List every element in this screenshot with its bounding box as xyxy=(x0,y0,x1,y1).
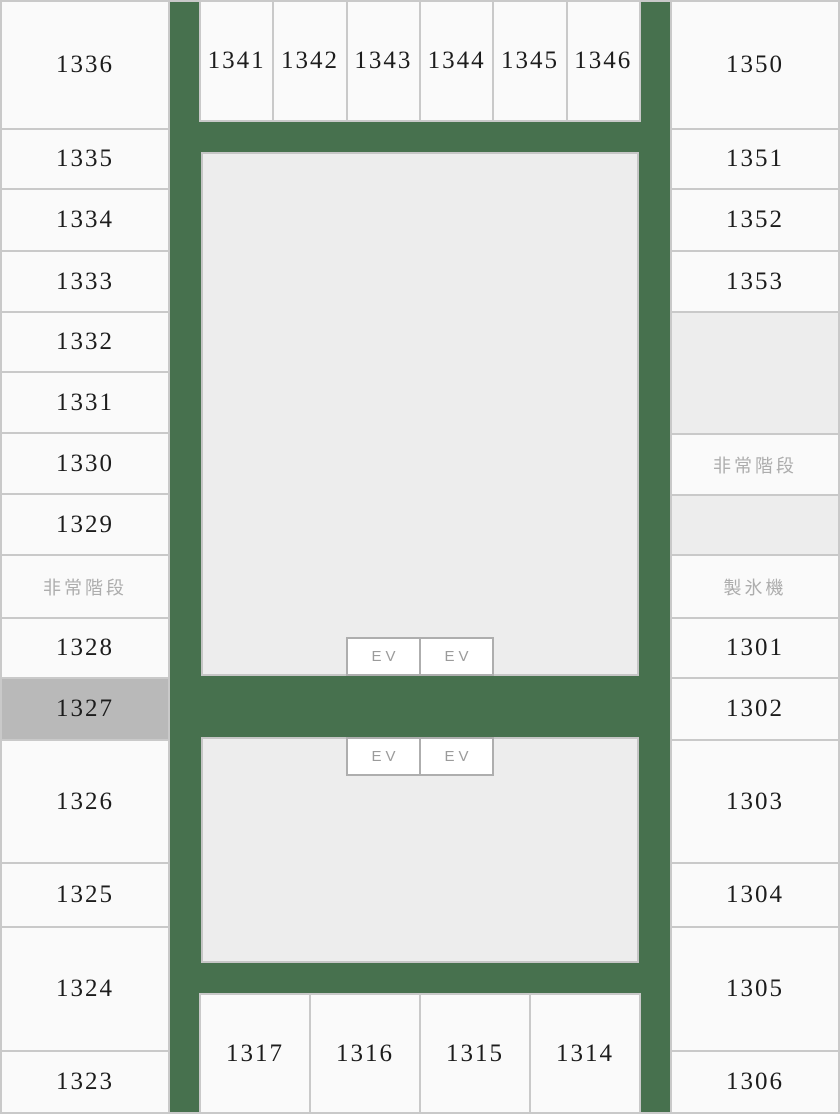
room-1345[interactable]: 1345 xyxy=(494,2,565,120)
empty-block xyxy=(672,313,838,433)
room-1305[interactable]: 1305 xyxy=(672,928,838,1050)
floor-map: 1336 1335 1334 1333 1332 1331 1330 1329 … xyxy=(0,0,840,1114)
room-1333[interactable]: 1333 xyxy=(2,252,168,311)
room-1316[interactable]: 1316 xyxy=(311,995,419,1112)
room-1304[interactable]: 1304 xyxy=(672,864,838,926)
room-1325[interactable]: 1325 xyxy=(2,864,168,926)
left-room-column: 1336 1335 1334 1333 1332 1331 1330 1329 … xyxy=(2,2,170,1112)
upper-utility-block: EV EV xyxy=(201,152,639,676)
room-1314[interactable]: 1314 xyxy=(531,995,639,1112)
right-room-column: 1350 1351 1352 1353 非常階段 製氷機 1301 1302 1… xyxy=(670,2,838,1112)
room-1350[interactable]: 1350 xyxy=(672,2,838,128)
room-1334[interactable]: 1334 xyxy=(2,190,168,250)
room-1317[interactable]: 1317 xyxy=(201,995,309,1112)
room-1341[interactable]: 1341 xyxy=(201,2,272,120)
room-1326[interactable]: 1326 xyxy=(2,741,168,862)
room-1342[interactable]: 1342 xyxy=(274,2,345,120)
bottom-room-row: 1317 1316 1315 1314 xyxy=(199,993,641,1114)
room-1301[interactable]: 1301 xyxy=(672,619,838,677)
corridor: 1341 1342 1343 1344 1345 1346 EV EV EV E… xyxy=(170,2,670,1112)
room-1351[interactable]: 1351 xyxy=(672,130,838,188)
room-1303[interactable]: 1303 xyxy=(672,741,838,862)
room-1302[interactable]: 1302 xyxy=(672,679,838,739)
lower-utility-block: EV EV xyxy=(201,737,639,963)
ice-machine-cell: 製氷機 xyxy=(672,556,838,617)
empty-block xyxy=(672,496,838,554)
upper-elevator-bank: EV EV xyxy=(346,637,494,676)
elevator-box: EV xyxy=(346,637,421,676)
room-1344[interactable]: 1344 xyxy=(421,2,492,120)
room-1352[interactable]: 1352 xyxy=(672,190,838,250)
top-room-row: 1341 1342 1343 1344 1345 1346 xyxy=(199,0,641,122)
emergency-stairs-cell: 非常階段 xyxy=(2,556,168,617)
room-1332[interactable]: 1332 xyxy=(2,313,168,371)
elevator-box: EV xyxy=(419,737,494,776)
room-1327-selected[interactable]: 1327 xyxy=(2,679,168,739)
room-1306[interactable]: 1306 xyxy=(672,1052,838,1112)
room-1323[interactable]: 1323 xyxy=(2,1052,168,1112)
room-1328[interactable]: 1328 xyxy=(2,619,168,677)
room-1329[interactable]: 1329 xyxy=(2,495,168,554)
room-1343[interactable]: 1343 xyxy=(348,2,419,120)
room-1324[interactable]: 1324 xyxy=(2,928,168,1050)
room-1346[interactable]: 1346 xyxy=(568,2,639,120)
lower-elevator-bank: EV EV xyxy=(346,737,494,776)
room-1335[interactable]: 1335 xyxy=(2,130,168,188)
room-1331[interactable]: 1331 xyxy=(2,373,168,432)
room-1353[interactable]: 1353 xyxy=(672,252,838,311)
elevator-box: EV xyxy=(419,637,494,676)
room-1330[interactable]: 1330 xyxy=(2,434,168,493)
room-1315[interactable]: 1315 xyxy=(421,995,529,1112)
room-1336[interactable]: 1336 xyxy=(2,2,168,128)
emergency-stairs-cell: 非常階段 xyxy=(672,435,838,494)
elevator-box: EV xyxy=(346,737,421,776)
